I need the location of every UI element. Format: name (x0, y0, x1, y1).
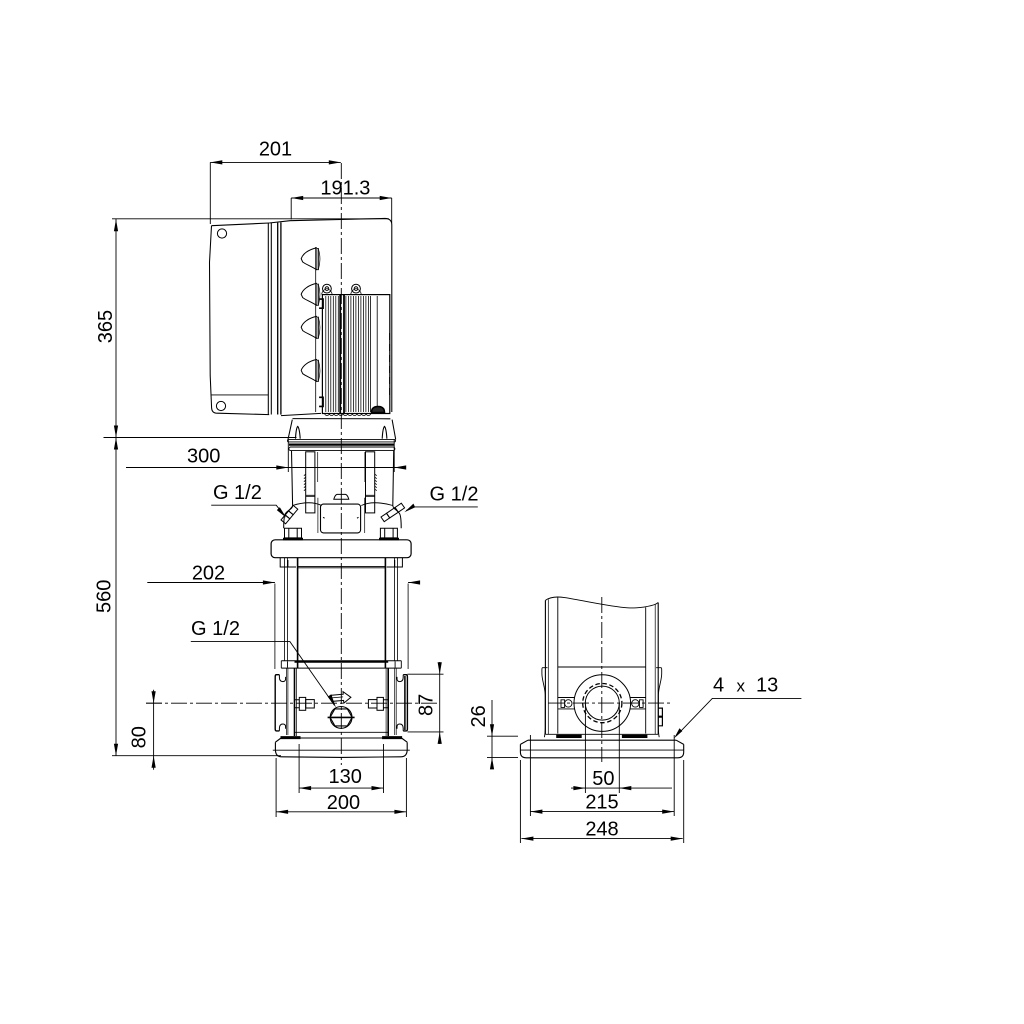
svg-text:87: 87 (416, 694, 438, 716)
svg-text:300: 300 (187, 446, 220, 468)
svg-text:560: 560 (93, 580, 115, 613)
svg-text:G 1/2: G 1/2 (213, 482, 262, 504)
svg-text:365: 365 (95, 310, 117, 343)
svg-text:201: 201 (259, 138, 292, 160)
svg-text:202: 202 (192, 563, 225, 585)
svg-text:4: 4 (713, 675, 724, 697)
svg-text:200: 200 (327, 792, 360, 814)
svg-text:50: 50 (592, 768, 614, 790)
svg-text:x: x (737, 677, 746, 696)
svg-text:191.3: 191.3 (320, 178, 370, 200)
svg-text:80: 80 (128, 726, 150, 748)
svg-text:215: 215 (585, 792, 618, 814)
svg-text:G 1/2: G 1/2 (430, 484, 479, 506)
svg-text:248: 248 (585, 819, 618, 841)
svg-text:G 1/2: G 1/2 (191, 618, 240, 640)
svg-text:13: 13 (756, 675, 778, 697)
svg-text:130: 130 (329, 766, 362, 788)
svg-text:26: 26 (468, 705, 490, 727)
